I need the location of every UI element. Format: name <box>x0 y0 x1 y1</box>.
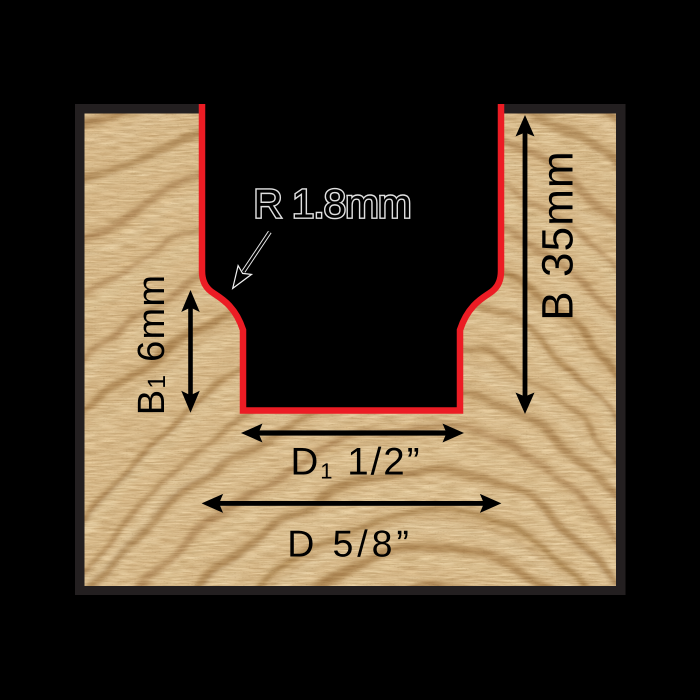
svg-text:B1 6mm: B1 6mm <box>131 274 173 415</box>
svg-text:D 5/8”: D 5/8” <box>287 523 413 565</box>
svg-text:R 1.8mm: R 1.8mm <box>253 180 410 226</box>
svg-text:D1 1/2”: D1 1/2” <box>290 440 421 483</box>
svg-text:B 35mm: B 35mm <box>534 150 583 320</box>
